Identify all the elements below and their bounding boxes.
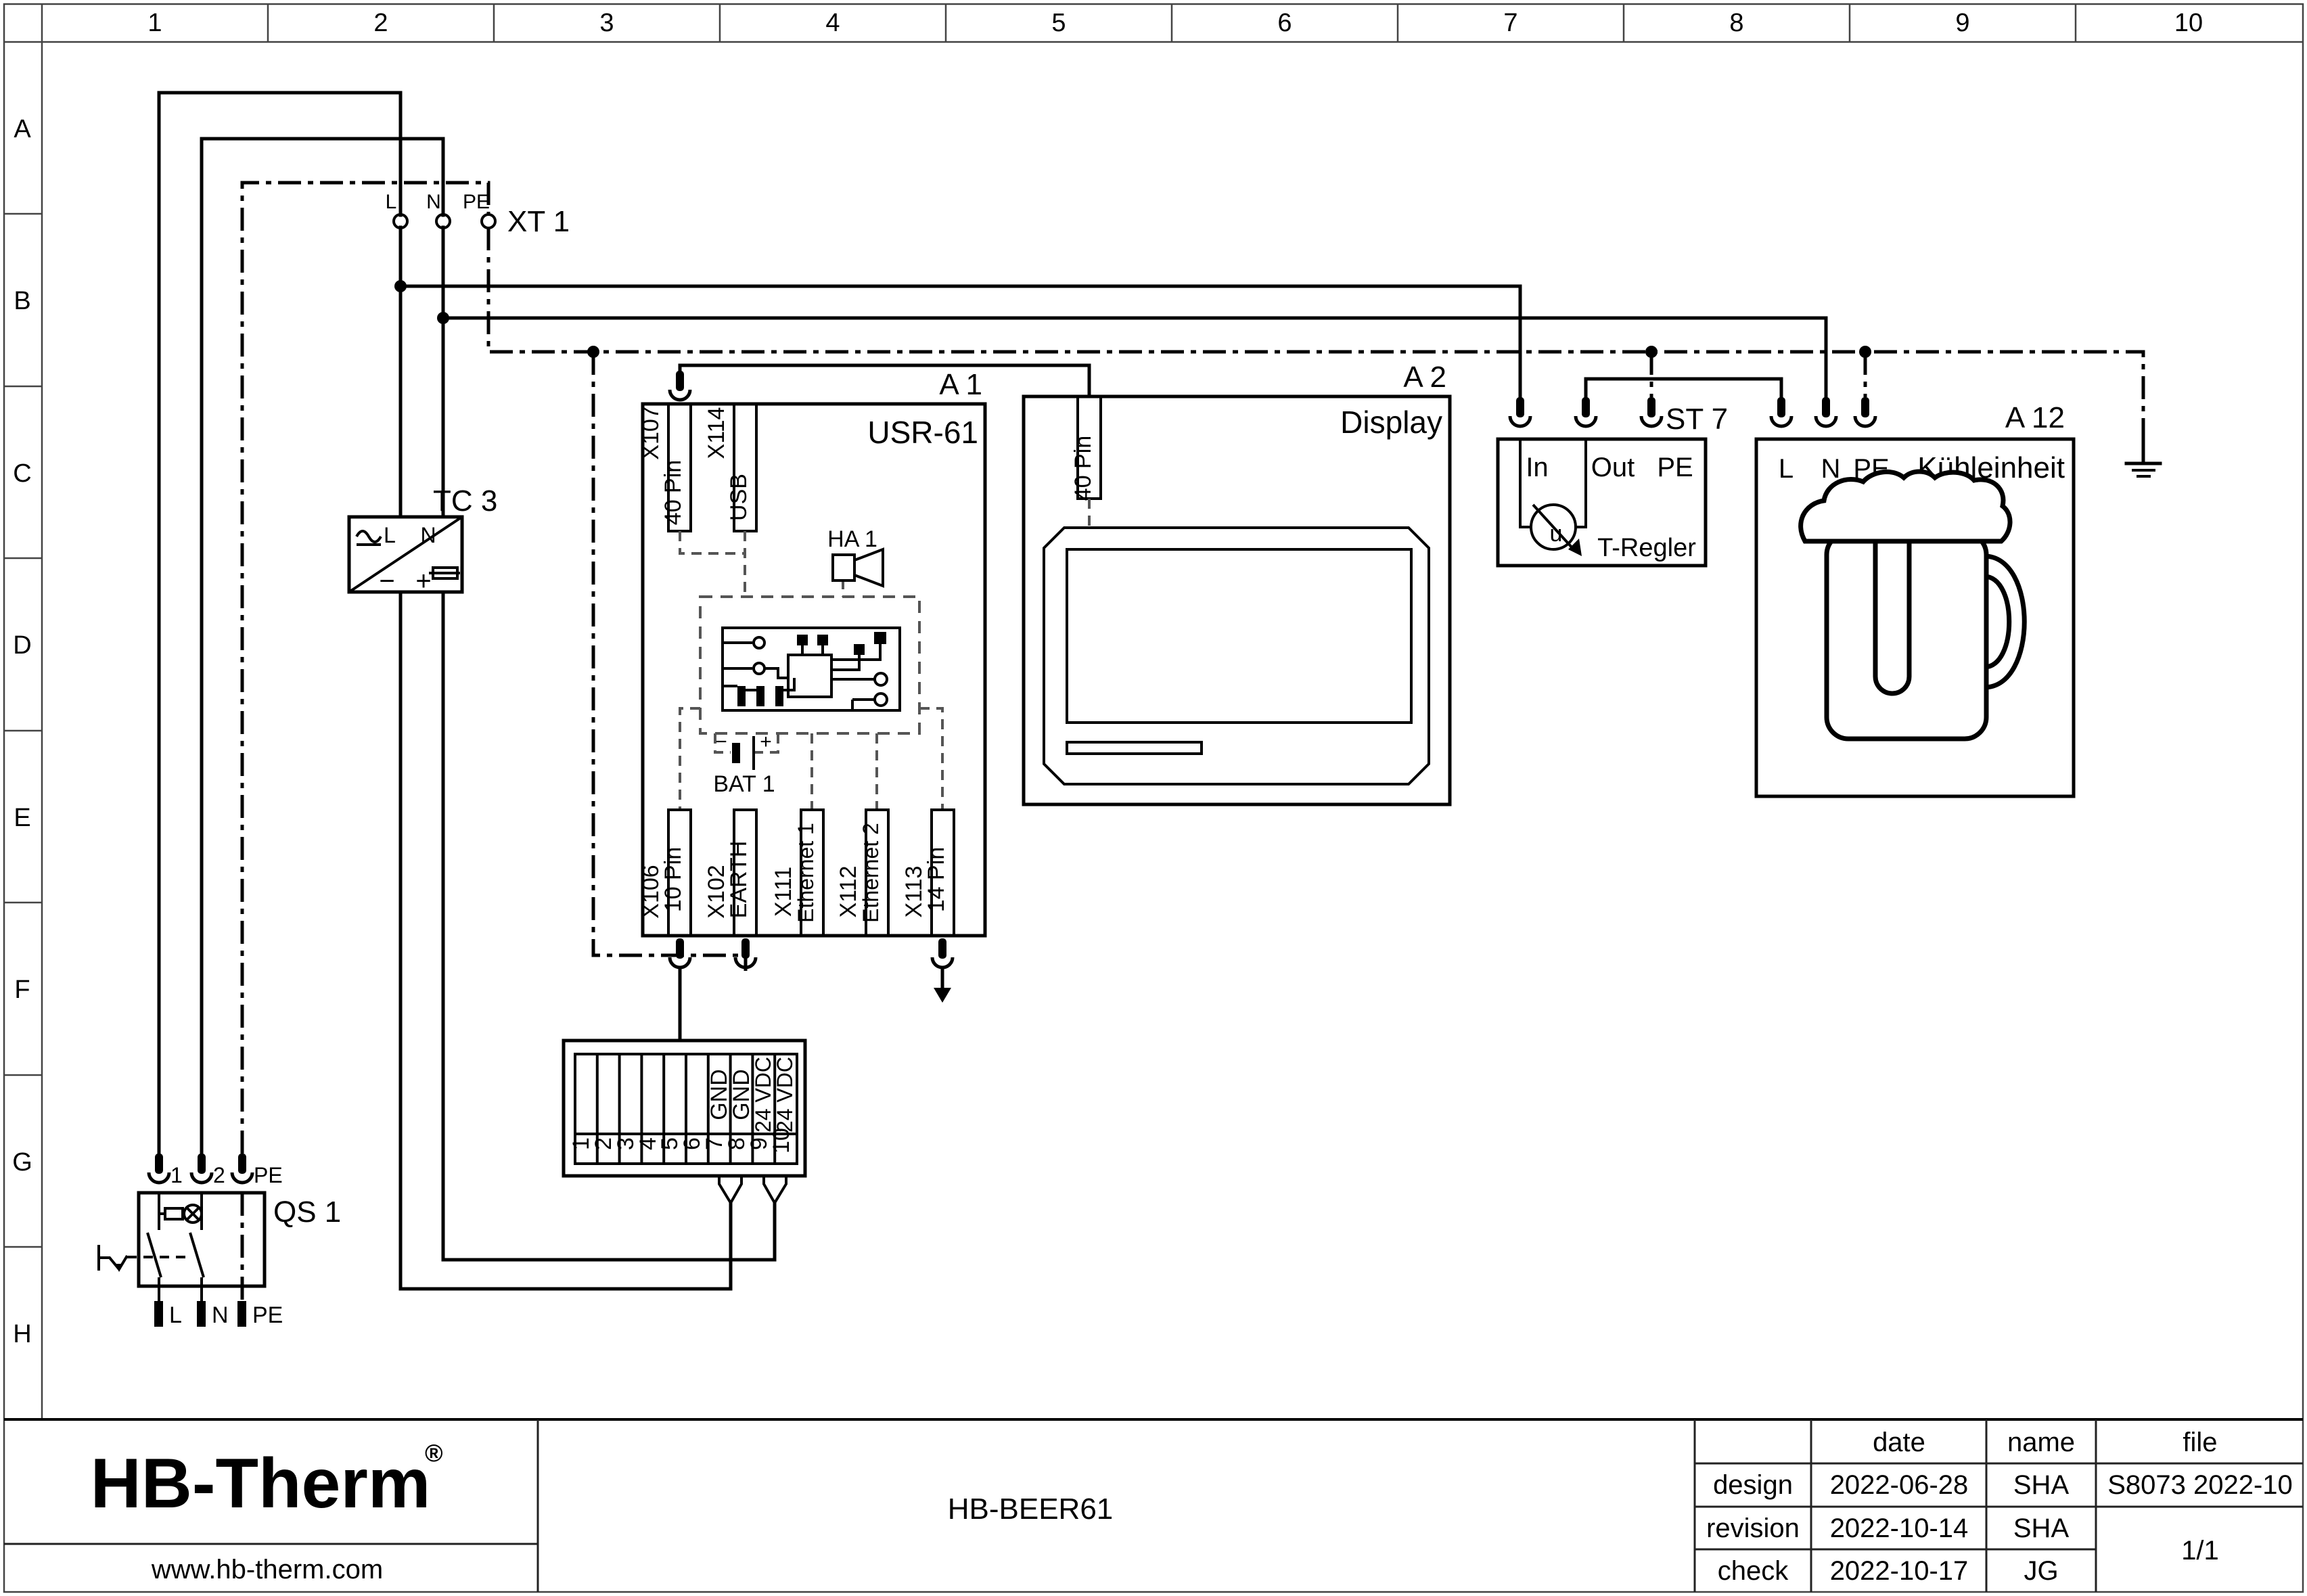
xt1-ref: XT 1 (507, 205, 570, 238)
x114-type: USB (726, 474, 752, 521)
row-design-date: 2022-06-28 (1830, 1470, 1969, 1500)
x113-arrow-icon (934, 988, 951, 1003)
qs1-main-switch: 1 2 PE QS 1 L N P (99, 1154, 341, 1328)
wire-pe-row-b (488, 227, 2143, 433)
pcb-artwork (723, 628, 900, 710)
grid-col-1: 1 (147, 9, 162, 37)
row-check-date: 2022-10-17 (1830, 1556, 1969, 1586)
row-revision-label: revision (1706, 1513, 1800, 1543)
wire-n-supply (202, 139, 443, 1154)
grid-row-g: G (12, 1148, 32, 1177)
a2-display: A 2 Display 40 Pin (1024, 361, 1450, 804)
a12-kuehleinheit: A 12 L N PE Kühleinheit (1756, 397, 2074, 796)
xt1-label-n: N (426, 191, 441, 213)
bat1-label: BAT 1 (713, 771, 775, 797)
st7-ref: ST 7 (1666, 403, 1728, 436)
company-logo: HB-Therm ® (91, 1439, 443, 1523)
qs1-bottom-terminals (154, 1301, 246, 1327)
xt1-terminal: L N PE XT 1 (386, 191, 570, 238)
wire-pe-supply (242, 183, 488, 1154)
row-revision-date: 2022-10-14 (1830, 1513, 1969, 1543)
tc3-ref: TC 3 (433, 484, 497, 518)
logo-text: HB-Therm (91, 1444, 431, 1523)
st7-t-regler: ST 7 In Out PE u T-Regler (1498, 397, 1728, 566)
grid-col-7: 7 (1503, 9, 1517, 37)
link-x107-x114 (680, 531, 745, 597)
grid-col-2: 2 (373, 9, 388, 37)
grid-row-a: A (14, 115, 31, 143)
grid-row-b: B (14, 287, 30, 315)
qs1-label-l: L (169, 1302, 182, 1328)
st7-desc: T-Regler (1597, 534, 1696, 562)
grid-col-6: 6 (1277, 9, 1292, 37)
col-header-date: date (1873, 1428, 1925, 1457)
row-design-name: SHA (2013, 1470, 2070, 1500)
qs1-label-n: N (212, 1302, 229, 1328)
a12-ref: A 12 (2005, 401, 2065, 434)
column-separators (268, 4, 2076, 42)
a1-name: USR-61 (867, 415, 978, 450)
grid-row-d: D (13, 631, 31, 660)
x113-type: 14 Pin (923, 847, 949, 912)
xt1-label-pe: PE (463, 191, 490, 213)
x111-type: Ethernet 1 (794, 823, 818, 923)
grid-row-e: E (14, 804, 30, 832)
st7-label-pe: PE (1657, 453, 1693, 482)
thermostat-dial-icon: u (1531, 505, 1582, 556)
tc3-label-plus: + (415, 566, 431, 596)
tc3-label-l: L (384, 523, 396, 547)
ha1-label: HA 1 (827, 526, 877, 552)
row-separators (4, 214, 42, 1247)
grid-row-h: H (13, 1320, 31, 1348)
terminal-9-label: 24 VDC (751, 1057, 775, 1133)
grid-row-c: C (13, 459, 31, 488)
tc3-label-minus: − (379, 566, 394, 596)
qs1-lamp-icon (159, 1205, 202, 1223)
x112-type: Ethernet 2 (859, 823, 883, 923)
link-x113 (919, 708, 942, 810)
a2-ref: A 2 (1403, 361, 1446, 394)
grid-col-3: 3 (599, 9, 614, 37)
st7-label-in: In (1526, 453, 1548, 482)
wire-n-row-b (443, 318, 1826, 397)
col-header-name: name (2007, 1428, 2075, 1457)
row-check-label: check (1718, 1556, 1789, 1586)
grid-col-10: 10 (2174, 9, 2203, 37)
grid-col-4: 4 (825, 9, 840, 37)
earth-ground-icon (2126, 433, 2160, 476)
x107-type: 40 Pin (660, 460, 686, 525)
grid-col-5: 5 (1051, 9, 1066, 37)
tc3-label-n: N (420, 523, 436, 547)
x106-type: 10 Pin (660, 847, 686, 912)
qs1-label-1: 1 (170, 1163, 183, 1187)
terminal-10-label: 24 VDC (773, 1057, 797, 1133)
wiring-diagram: 1 2 3 4 5 6 7 8 9 10 A B C D E F G H (0, 0, 2307, 1596)
ac-symbol-icon (357, 531, 381, 542)
a2-conn-40pin: 40 Pin (1070, 436, 1096, 501)
beer-mug-icon (1801, 472, 2025, 739)
qs1-label-2: 2 (213, 1163, 225, 1187)
file-value: S8073 2022-10 (2107, 1470, 2293, 1500)
terminal-block: 1 2 3 4 5 6 7 8 9 10 GND GND 24 VDC 24 V… (564, 1041, 805, 1176)
row-check-name: JG (2024, 1556, 2058, 1586)
x112-id: X112 (836, 866, 861, 918)
grid-col-8: 8 (1729, 9, 1743, 37)
wire-st7-out-a12 (1586, 379, 1781, 397)
bat1-battery-icon: − + (715, 731, 772, 770)
schematic-page: 1 2 3 4 5 6 7 8 9 10 A B C D E F G H (0, 0, 2307, 1596)
qs1-label-pe-top: PE (254, 1163, 283, 1187)
fuse-icon (429, 568, 460, 578)
company-website: www.hb-therm.com (151, 1555, 383, 1584)
qs1-ref: QS 1 (273, 1195, 341, 1229)
x111-id: X111 (771, 867, 796, 917)
title-block: HB-Therm ® www.hb-therm.com HB-BEER61 da… (4, 1419, 2303, 1592)
grid-row-f: F (14, 976, 30, 1004)
page-number: 1/1 (2181, 1536, 2219, 1566)
x114-id: X114 (704, 407, 729, 459)
pcb-module-outline (700, 597, 919, 733)
a12-label-l: L (1779, 454, 1794, 484)
wire-l-supply (159, 93, 401, 1154)
xt1-label-l: L (386, 191, 397, 213)
a1-usr61-controller: A 1 USR-61 X107 40 Pin X114 USB HA 1 (638, 368, 985, 967)
a2-name: Display (1340, 405, 1442, 440)
st7-dial-glyph: u (1550, 521, 1563, 547)
bat1-minus: − (715, 731, 727, 753)
qs1-label-pe-bottom: PE (252, 1302, 283, 1328)
x107-id: X107 (638, 406, 664, 459)
qs1-handle-icon (99, 1245, 127, 1272)
tc3-power-supply: L N − + TC 3 (349, 484, 497, 596)
grid-col-9: 9 (1955, 9, 1969, 37)
a12-label-n: N (1821, 454, 1841, 484)
wire-merge-gnd (719, 1176, 741, 1203)
logo-registered-icon: ® (425, 1439, 443, 1467)
display-screen-icon (1044, 528, 1429, 784)
wire-merge-24vdc (764, 1176, 786, 1203)
wire-display-cable (680, 365, 1089, 396)
link-x106 (680, 708, 700, 810)
a1-ref: A 1 (939, 368, 982, 401)
ha1-buzzer-icon (833, 549, 883, 586)
wire-24vdc (443, 592, 775, 1260)
st7-label-out: Out (1591, 453, 1635, 482)
row-design-label: design (1713, 1470, 1793, 1500)
col-header-file: file (2183, 1428, 2217, 1457)
drawing-title: HB-BEER61 (948, 1492, 1114, 1526)
bat1-plus: + (760, 731, 772, 753)
row-revision-name: SHA (2013, 1513, 2070, 1543)
x102-type: EARTH (726, 841, 752, 919)
